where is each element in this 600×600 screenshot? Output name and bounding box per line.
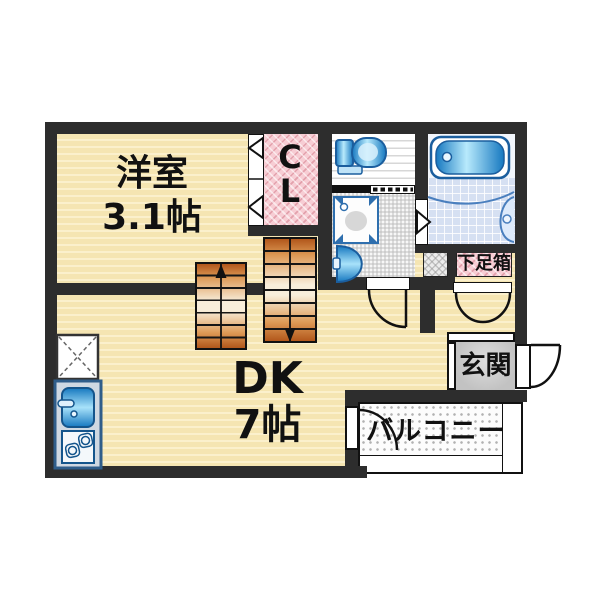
bathtub-icon <box>431 137 509 178</box>
stairs-up-arrow <box>216 263 227 348</box>
shoe-box-label: 下足箱 <box>456 253 512 274</box>
refrigerator-icon <box>57 335 98 379</box>
fixture-overlay <box>0 0 600 600</box>
closet-letter-c: C <box>262 140 318 174</box>
washbasin-icon <box>333 246 362 282</box>
closet-label: C L <box>262 140 318 208</box>
stove-icon <box>62 431 94 463</box>
washing-machine-pan-icon <box>334 197 378 243</box>
washroom-door-arc <box>369 289 406 327</box>
toilet-icon <box>336 138 386 174</box>
shoebox-double-door-arc <box>456 293 510 322</box>
western-room-label: 洋室 3.1帖 <box>62 152 242 240</box>
bath-counter-icon <box>428 192 514 242</box>
closet-bifold-door-icon <box>249 138 263 218</box>
western-room-size: 3.1帖 <box>62 196 242 240</box>
bathroom-door-icon <box>417 211 430 233</box>
floorplan-canvas: 洋室 3.1帖 C L DK 7帖 下足箱 玄関 バルコニー <box>0 0 600 600</box>
stairs-down-arrow <box>285 238 296 342</box>
western-room-name: 洋室 <box>62 152 242 196</box>
dk-label: DK 7帖 <box>180 355 355 449</box>
closet-letter-l: L <box>262 174 318 208</box>
balcony-label: バルコニー <box>366 417 501 446</box>
dk-size: 7帖 <box>180 402 355 449</box>
dk-name: DK <box>180 355 355 402</box>
front-door-arc <box>531 345 560 387</box>
entrance-label: 玄関 <box>456 352 515 380</box>
